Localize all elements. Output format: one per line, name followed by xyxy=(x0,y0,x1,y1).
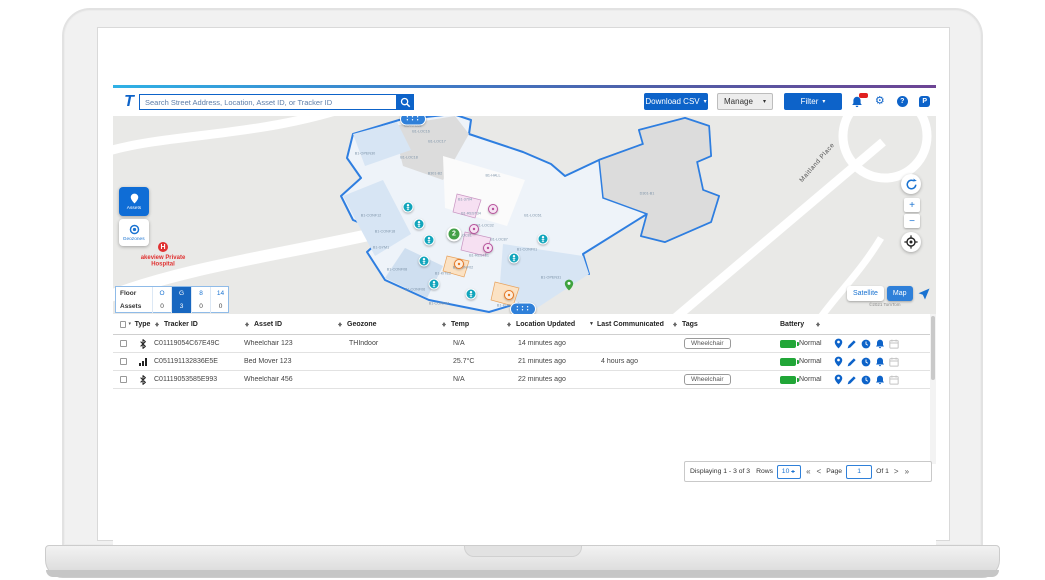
floor-option[interactable]: 14 xyxy=(210,287,230,300)
of-pages-label: Of 1 xyxy=(876,468,889,475)
pagination-bar: Displaying 1 - 3 of 3 Rows 10 « < Page 1… xyxy=(684,461,932,482)
zoom-out-button[interactable]: − xyxy=(904,214,920,228)
navigation-plane-icon[interactable] xyxy=(918,288,930,300)
map-pin-icon xyxy=(130,193,139,204)
col-header-tags[interactable]: Tags xyxy=(672,320,780,329)
room-label: D301-B1 xyxy=(640,192,655,196)
notifications-bell-icon[interactable] xyxy=(851,95,864,108)
sort-icon xyxy=(815,320,822,329)
app-window: T Download CSV▾ Manage▾ Filter▾ xyxy=(113,59,936,523)
col-header-tracker-id[interactable]: Tracker ID xyxy=(154,320,244,329)
asset-marker[interactable] xyxy=(538,234,549,245)
cluster-count-marker[interactable]: 2 xyxy=(447,227,462,242)
room-label: B1-LOC87 xyxy=(490,238,508,242)
rows-label: Rows xyxy=(756,468,773,475)
chevron-down-icon: ▾ xyxy=(822,99,825,105)
sort-icon xyxy=(244,320,251,329)
geozone-cell: THIndoor xyxy=(337,340,441,347)
settings-gear-icon[interactable]: ⚙ xyxy=(874,95,887,108)
last-page-button[interactable]: » xyxy=(904,467,910,476)
search-button[interactable] xyxy=(396,94,414,110)
calendar-icon xyxy=(889,375,899,385)
page-label: Page xyxy=(826,468,842,475)
screen-display: T Download CSV▾ Manage▾ Filter▾ xyxy=(97,27,950,541)
battery-status: Normal xyxy=(799,340,822,347)
col-header-type[interactable]: Type xyxy=(131,321,154,328)
download-csv-button[interactable]: Download CSV▾ xyxy=(644,93,708,110)
refresh-icon xyxy=(905,178,918,191)
kitchen-marker[interactable] xyxy=(454,259,464,269)
temp-cell: N/A xyxy=(441,340,506,347)
floor-option[interactable]: G xyxy=(171,287,191,300)
edit-icon[interactable] xyxy=(847,375,857,385)
tracker-id-cell: C01119054C67E49C xyxy=(154,340,244,347)
locate-asset-icon[interactable] xyxy=(834,356,843,367)
battery-status: Normal xyxy=(799,358,822,365)
temp-cell: N/A xyxy=(441,376,506,383)
asset-id-cell: Bed Mover 123 xyxy=(244,358,337,365)
hospital-h-icon: H xyxy=(158,242,168,252)
laptop-base xyxy=(45,545,1000,578)
floor-asset-count: 3 xyxy=(171,300,191,313)
asset-marker[interactable] xyxy=(509,253,520,264)
kitchen-marker[interactable] xyxy=(504,290,514,300)
table-scrollbar[interactable] xyxy=(930,314,936,464)
battery-level-icon xyxy=(780,376,796,384)
rest-marker[interactable] xyxy=(488,204,498,214)
crosshair-icon xyxy=(904,235,918,249)
room-label: B301-B2 xyxy=(428,172,442,176)
rows-per-page-select[interactable]: 10 xyxy=(777,465,801,479)
room-label: B1-CONF08 xyxy=(387,268,407,272)
floor-row-label: Floor xyxy=(116,287,152,300)
cluster-dots-marker[interactable]: • • •• • • xyxy=(510,303,536,315)
chevron-down-icon: ▾ xyxy=(763,99,766,105)
prev-page-button[interactable]: < xyxy=(816,467,823,476)
asset-id-cell: Wheelchair 456 xyxy=(244,376,337,383)
chevron-down-icon: ▾ xyxy=(704,99,707,105)
green-pin-marker[interactable] xyxy=(564,279,574,292)
app-p-badge-icon[interactable]: P xyxy=(919,95,932,108)
location-updated-cell: 14 minutes ago xyxy=(506,340,589,347)
room-label: B1-GYM1 xyxy=(373,246,389,250)
asset-marker[interactable] xyxy=(403,202,414,213)
room-label: B1-LOC16 xyxy=(412,130,430,134)
room-label: B1-LOC18 xyxy=(400,156,418,160)
search-icon xyxy=(400,97,411,108)
col-header-temp[interactable]: Temp xyxy=(441,320,506,329)
table-row[interactable]: C01119054C67E49C Wheelchair 123 THIndoor… xyxy=(113,335,936,353)
sort-icon xyxy=(672,320,679,329)
calendar-icon xyxy=(889,339,899,349)
asset-marker[interactable] xyxy=(414,219,425,230)
calendar-icon xyxy=(889,357,899,367)
rest-marker[interactable] xyxy=(483,243,493,253)
col-header-geozone[interactable]: Geozone xyxy=(337,320,441,329)
sort-icon xyxy=(506,320,513,329)
battery-level-icon xyxy=(780,358,796,366)
last-communicated-cell: 4 hours ago xyxy=(589,358,672,365)
laptop-screen: T Download CSV▾ Manage▾ Filter▾ xyxy=(62,8,983,545)
zoom-in-button[interactable]: + xyxy=(904,198,920,212)
locate-asset-icon[interactable] xyxy=(834,374,843,385)
bluetooth-icon xyxy=(131,374,154,386)
floor-option[interactable]: 8 xyxy=(191,287,210,300)
battery-level-icon xyxy=(780,340,796,348)
first-page-button[interactable]: « xyxy=(805,467,811,476)
history-clock-icon[interactable] xyxy=(861,357,871,367)
cluster-dots-marker[interactable]: • • •• • • xyxy=(400,116,426,126)
notification-badge xyxy=(859,93,868,98)
signal-bars-icon xyxy=(131,358,154,366)
sort-icon xyxy=(441,320,448,329)
telstra-logo[interactable]: T xyxy=(120,92,138,111)
rest-marker[interactable] xyxy=(469,224,479,234)
scrollbar-thumb[interactable] xyxy=(931,316,935,380)
sort-icon xyxy=(154,320,161,329)
map-attribution: ©2021 TomTom xyxy=(869,303,901,308)
asset-id-cell: Wheelchair 123 xyxy=(244,340,337,347)
room-label: B1-REST34 xyxy=(461,212,481,216)
alerts-bell-icon[interactable] xyxy=(875,375,885,385)
room-label: B1-HALL xyxy=(485,174,500,178)
tracker-id-cell: C051191132836E5E xyxy=(154,358,244,365)
tag-chip: Wheelchair xyxy=(684,374,731,385)
filter-button[interactable]: Filter▾ xyxy=(784,93,842,110)
manage-dropdown[interactable]: Manage▾ xyxy=(717,93,773,110)
search-input[interactable] xyxy=(139,94,396,110)
bluetooth-icon xyxy=(131,338,154,350)
page-number-input[interactable]: 1 xyxy=(846,465,872,479)
edit-icon[interactable] xyxy=(847,339,857,349)
col-header-last-communicated[interactable]: ▼Last Communicated xyxy=(589,321,672,328)
assets-layer-button[interactable]: Assets xyxy=(119,187,149,216)
tracker-id-cell: C01119053585E993 xyxy=(154,376,244,383)
asset-marker[interactable] xyxy=(429,279,440,290)
laptop-notch xyxy=(464,546,582,557)
floor-option[interactable]: O xyxy=(152,287,171,300)
satellite-toggle-button[interactable]: Satellite xyxy=(847,286,884,301)
floor-asset-count: 0 xyxy=(152,300,171,313)
row-checkbox[interactable] xyxy=(120,340,127,347)
location-updated-cell: 22 minutes ago xyxy=(506,376,589,383)
target-icon xyxy=(129,224,140,235)
hospital-name: akeview Private Hospital xyxy=(131,255,195,268)
floor-asset-count: 0 xyxy=(210,300,230,313)
location-updated-cell: 21 minutes ago xyxy=(506,358,589,365)
asset-table: ▾ Type Tracker ID Asset ID Geozone Temp … xyxy=(113,314,936,551)
temp-cell: 25.7°C xyxy=(441,358,506,365)
select-all-checkbox[interactable] xyxy=(120,321,126,328)
table-header-row: ▾ Type Tracker ID Asset ID Geozone Temp … xyxy=(113,314,936,335)
room-label: B1-CONF04 xyxy=(429,302,449,306)
alerts-bell-icon[interactable] xyxy=(875,339,885,349)
asset-marker[interactable] xyxy=(466,289,477,300)
room-label: B1-REST81 xyxy=(469,254,489,258)
toolbar: T Download CSV▾ Manage▾ Filter▾ xyxy=(113,88,936,116)
table-row[interactable]: C051191132836E5E Bed Mover 123 25.7°C 21… xyxy=(113,353,936,371)
room-label: B1-OPEN31 xyxy=(541,276,561,280)
room-label: B1-LOC61 xyxy=(524,214,542,218)
room-label: B1-OPEN30 xyxy=(355,152,375,156)
room-label: B1-CONF18 xyxy=(375,230,395,234)
asset-marker[interactable] xyxy=(419,256,430,267)
tag-chip: Wheelchair xyxy=(684,338,731,349)
select-arrows-icon xyxy=(791,468,796,475)
sort-desc-icon: ▼ xyxy=(589,321,594,327)
map-refresh-button[interactable] xyxy=(901,174,921,194)
room-label: B1-KITE2 xyxy=(435,272,451,276)
room-label: B1-CONF01 xyxy=(517,248,537,252)
col-header-battery[interactable]: Battery xyxy=(780,320,834,329)
row-checkbox[interactable] xyxy=(120,358,127,365)
locate-asset-icon[interactable] xyxy=(834,338,843,349)
hospital-poi[interactable]: H akeview Private Hospital xyxy=(128,242,198,268)
room-label: B1-CONF12 xyxy=(361,214,381,218)
floor-selector-panel: Floor OG814 Assets 0300 xyxy=(115,286,229,313)
map-toggle-button[interactable]: Map xyxy=(887,286,913,301)
help-icon[interactable]: ? xyxy=(896,95,909,108)
locate-button[interactable] xyxy=(901,232,921,252)
displaying-count: Displaying 1 - 3 of 3 xyxy=(690,468,750,475)
floor-asset-count: 0 xyxy=(191,300,210,313)
room-label: B1-LOC17 xyxy=(428,140,446,144)
history-clock-icon[interactable] xyxy=(861,375,871,385)
edit-icon[interactable] xyxy=(847,357,857,367)
top-whitespace xyxy=(113,59,936,85)
sort-icon xyxy=(337,320,344,329)
assets-row-label: Assets xyxy=(116,300,152,313)
history-clock-icon[interactable] xyxy=(861,339,871,349)
col-header-location-updated[interactable]: Location Updated xyxy=(506,320,589,329)
table-row[interactable]: C01119053585E993 Wheelchair 456 N/A 22 m… xyxy=(113,371,936,389)
asset-marker[interactable] xyxy=(424,235,435,246)
row-checkbox[interactable] xyxy=(120,376,127,383)
basemap-toggle: Satellite Map xyxy=(847,286,930,301)
laptop-mockup: T Download CSV▾ Manage▾ Filter▾ xyxy=(0,0,1045,580)
col-header-asset-id[interactable]: Asset ID xyxy=(244,320,337,329)
alerts-bell-icon[interactable] xyxy=(875,357,885,367)
map-canvas[interactable]: B1-KFE81B1-LOC16B1-LOC17B1-OPEN30B1-LOC1… xyxy=(113,116,936,314)
room-label: B1-CONF06 xyxy=(405,288,425,292)
room-label: B1-3704 xyxy=(458,198,472,202)
next-page-button[interactable]: > xyxy=(893,467,900,476)
battery-status: Normal xyxy=(799,376,822,383)
